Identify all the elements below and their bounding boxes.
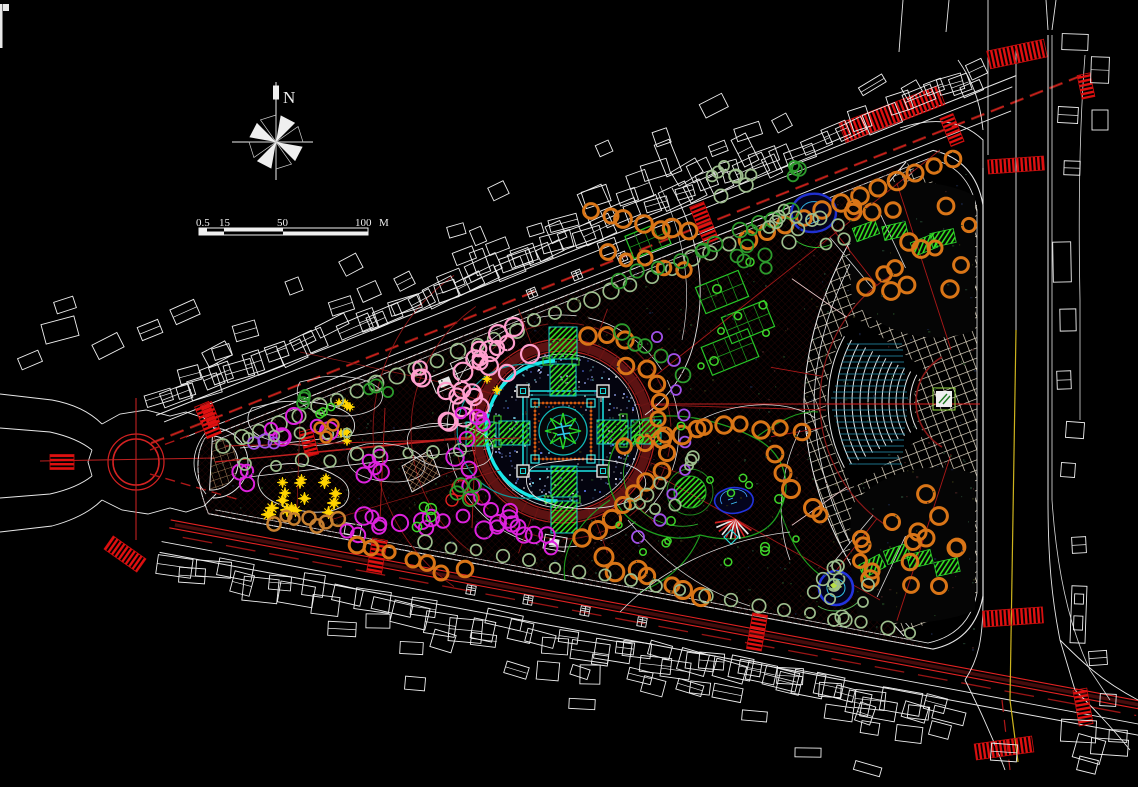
svg-text:M: M [379, 217, 389, 229]
svg-text:N: N [283, 88, 295, 107]
svg-text:50: 50 [277, 217, 289, 229]
svg-text:15: 15 [219, 217, 231, 229]
svg-text:0.5: 0.5 [196, 217, 210, 229]
svg-text:100: 100 [355, 217, 372, 229]
